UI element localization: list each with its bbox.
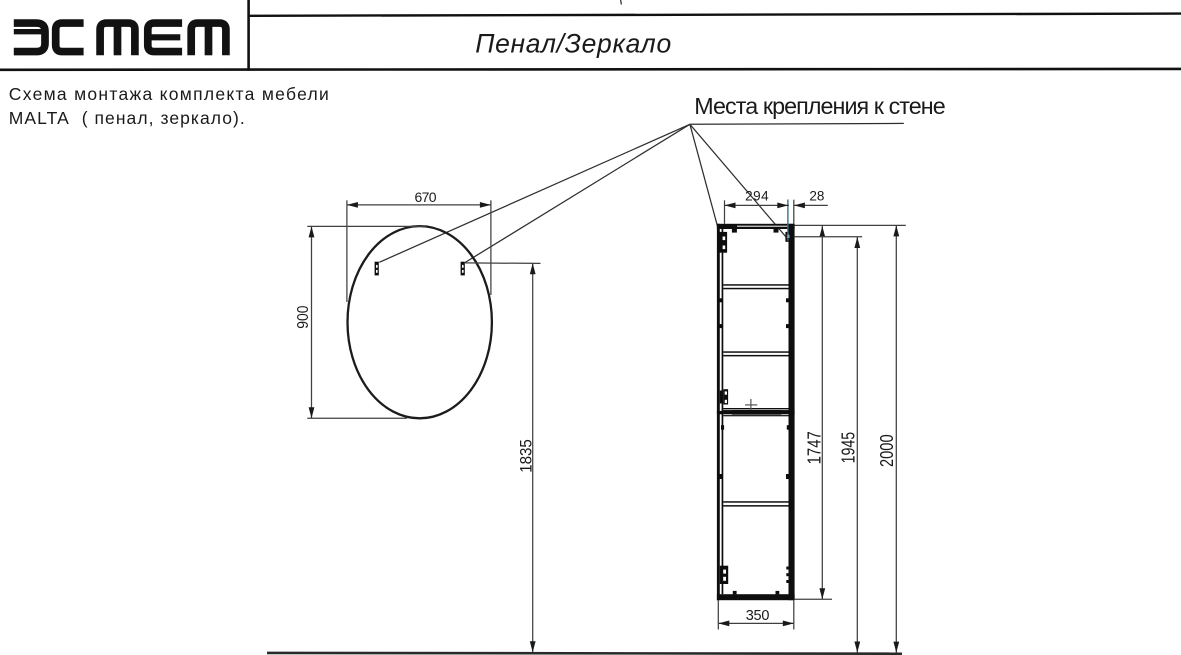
svg-text:294: 294	[745, 188, 769, 203]
svg-text:28: 28	[809, 188, 824, 203]
svg-text:670: 670	[415, 189, 437, 205]
svg-text:350: 350	[746, 608, 770, 624]
svg-text:1835: 1835	[517, 439, 535, 473]
svg-text:1747: 1747	[803, 431, 824, 464]
svg-text:2000: 2000	[876, 434, 897, 467]
svg-text:Места крепления к стене: Места крепления к стене	[694, 93, 945, 119]
svg-text:1945: 1945	[838, 432, 859, 464]
svg-text:Схема монтажа комплекта мебели: Схема монтажа комплекта мебели	[9, 84, 329, 104]
svg-text:Пенал/Зеркало: Пенал/Зеркало	[475, 28, 671, 58]
svg-text:900: 900	[295, 305, 312, 328]
svg-text:MALTA ( пенал, зеркало).: MALTA ( пенал, зеркало).	[9, 108, 245, 128]
